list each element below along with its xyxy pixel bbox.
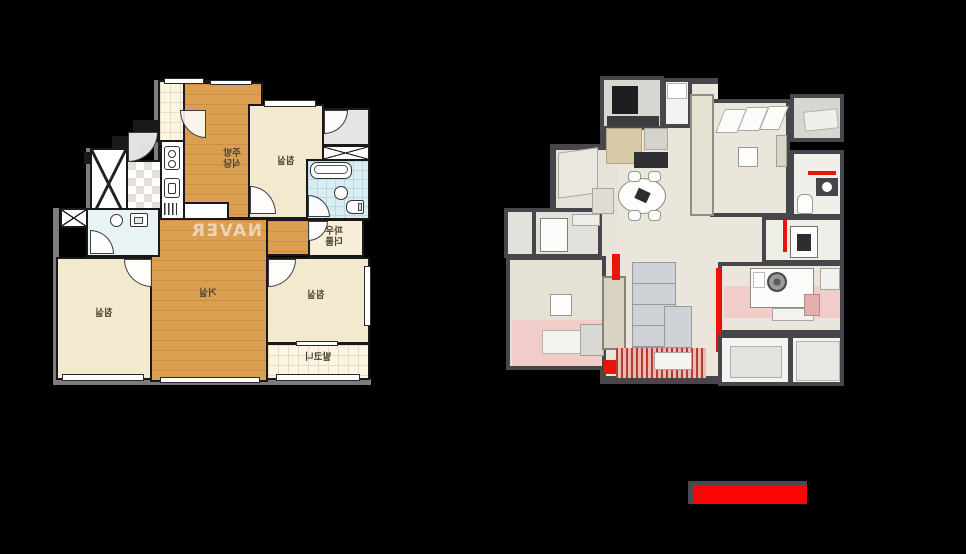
corner-panel bbox=[803, 108, 839, 131]
bedroom-tr-table bbox=[738, 147, 758, 167]
dining-chair-2 bbox=[648, 171, 661, 182]
refrigerator bbox=[612, 86, 638, 114]
balcony-panel-a bbox=[730, 346, 782, 378]
bathroom-left-r bbox=[504, 208, 602, 258]
bath-vanity bbox=[816, 178, 838, 196]
entry-cabinet bbox=[662, 78, 692, 128]
utility-counter bbox=[607, 116, 659, 126]
kitchen-side-unit bbox=[644, 128, 668, 150]
bedroom-bottom-right-r bbox=[718, 262, 844, 334]
bedroom-bl-table bbox=[550, 294, 572, 316]
pantry-cabinet bbox=[690, 94, 714, 216]
dining-chair-4 bbox=[648, 210, 661, 221]
corner-top-right bbox=[790, 94, 844, 142]
blanket-swirl bbox=[767, 272, 787, 292]
red-accent-laundry bbox=[783, 220, 787, 252]
shoe-cabinet bbox=[667, 83, 687, 99]
bathl-counter bbox=[572, 214, 600, 226]
balcony-bottom-right bbox=[718, 334, 844, 386]
dining-chair-1 bbox=[628, 171, 641, 182]
right-corridor-floor bbox=[716, 216, 768, 262]
washing-machine bbox=[790, 226, 818, 258]
balcony-panel-b bbox=[796, 341, 840, 381]
wall-top-right-spine bbox=[688, 78, 718, 84]
red-accent-bath-shelf bbox=[808, 171, 836, 175]
dining-chair-3 bbox=[628, 210, 641, 221]
laundry-room bbox=[762, 216, 844, 264]
bedroom-tr-cabinet bbox=[776, 135, 787, 167]
screenshot-stage: 주방 식당 침실 파우 더룸 거실 침실 발코니 침실 NAVER bbox=[0, 0, 966, 554]
bedroom-bottom-left-r bbox=[506, 256, 606, 370]
red-highlight-bar bbox=[688, 481, 807, 504]
bathtub-r bbox=[540, 218, 568, 252]
bedroom-bl-cabinet bbox=[580, 324, 604, 356]
balcony-divider bbox=[788, 338, 793, 384]
bedroom-top-right-r bbox=[710, 99, 790, 217]
pink-chair bbox=[804, 294, 820, 316]
toilet-r bbox=[797, 194, 813, 214]
bathl-divider bbox=[532, 212, 536, 254]
left-corridor-floor bbox=[600, 214, 616, 258]
right-floor-plan bbox=[0, 0, 966, 554]
utility-top-left bbox=[600, 76, 664, 130]
kitchen-island-dark bbox=[634, 152, 668, 168]
nook-dresser bbox=[592, 188, 614, 214]
desk bbox=[820, 268, 840, 290]
bathroom-right-r bbox=[790, 150, 844, 218]
bookshelf bbox=[602, 276, 626, 350]
coffee-table bbox=[654, 352, 692, 370]
sofa-chaise bbox=[664, 306, 692, 348]
red-accent-shelf-top bbox=[612, 254, 620, 280]
